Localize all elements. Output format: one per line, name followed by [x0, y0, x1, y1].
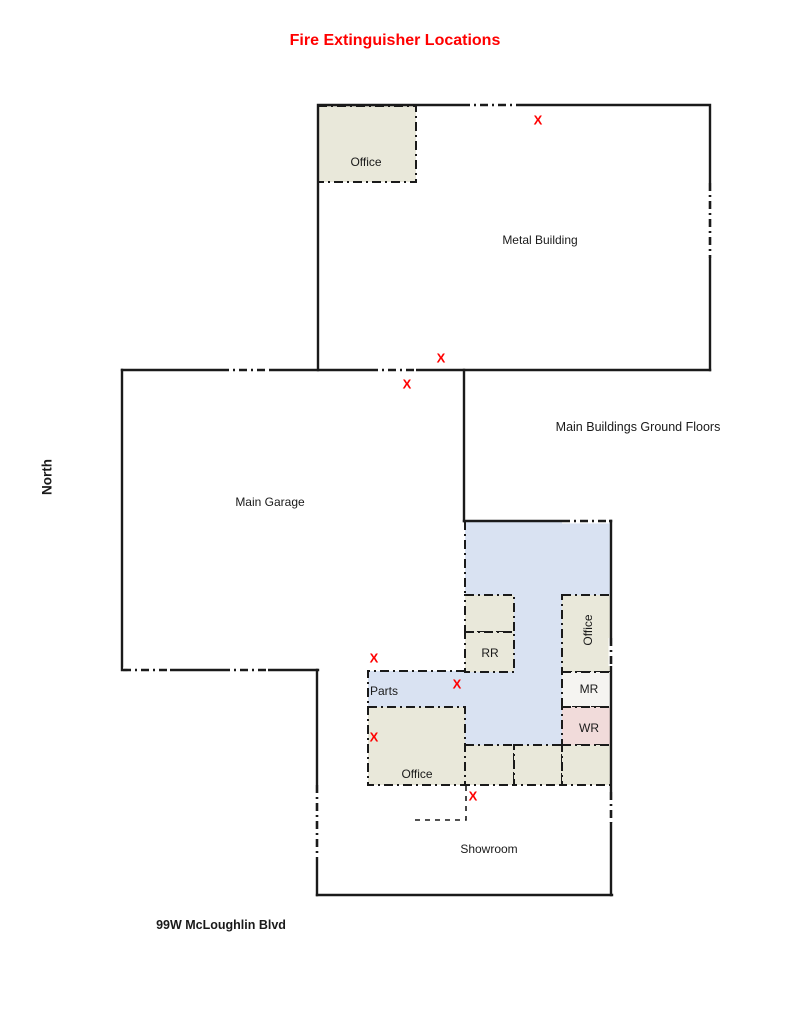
label-showroom: Showroom: [460, 843, 517, 855]
label-room-wr: WR: [579, 722, 599, 734]
label-main-garage: Main Garage: [235, 496, 304, 508]
label-room-parts: Parts: [370, 685, 398, 697]
label-metal-building: Metal Building: [502, 234, 577, 246]
fire-extinguisher-mark: X: [469, 790, 478, 803]
area-blue-top: [465, 521, 611, 596]
label-room-office-lower: Office: [401, 768, 432, 780]
area-blue-lower: [465, 672, 562, 745]
fire-extinguisher-mark: X: [437, 352, 446, 365]
label-room-mr: MR: [580, 683, 599, 695]
label-room-office-east: Office: [582, 614, 594, 645]
label-north-compass: North: [40, 459, 54, 495]
floor-plan-drawing: [0, 0, 792, 1024]
fire-extinguisher-mark: X: [370, 731, 379, 744]
wall-garage-west-south: [122, 370, 318, 670]
label-street-address: 99W McLoughlin Blvd: [156, 919, 286, 932]
fire-extinguisher-mark: X: [534, 114, 543, 127]
fire-extinguisher-mark: X: [370, 652, 379, 665]
floor-plan-page: Fire Extinguisher Locations: [0, 0, 792, 1024]
label-metal-building-office: Office: [350, 156, 381, 168]
label-room-rr: RR: [481, 647, 498, 659]
room-rr-upper: [465, 595, 514, 632]
area-blue-corridor: [514, 595, 562, 673]
room-cell-c: [562, 745, 611, 785]
fire-extinguisher-mark: X: [403, 378, 412, 391]
room-cell-a: [465, 745, 514, 785]
room-cell-b: [514, 745, 562, 785]
fire-extinguisher-mark: X: [453, 678, 462, 691]
partition-showroom-dashed: [414, 786, 466, 820]
room-metal-building-office: [318, 106, 416, 182]
label-ground-floors-note: Main Buildings Ground Floors: [556, 421, 721, 434]
